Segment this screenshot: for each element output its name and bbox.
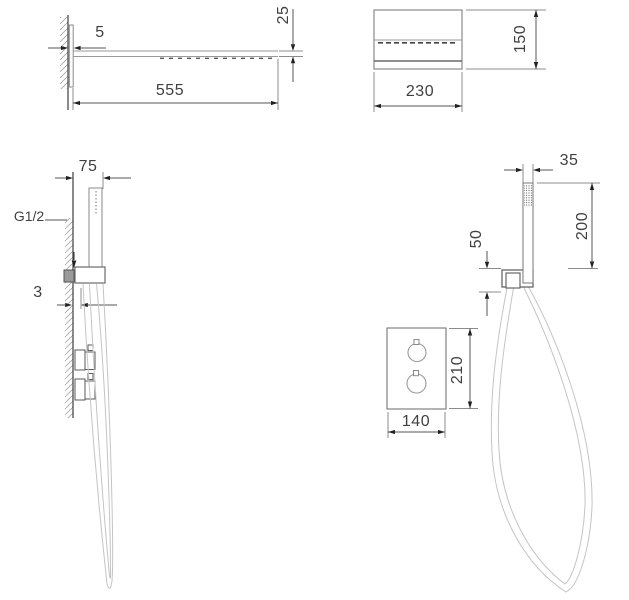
dim-label-handset-offset: 75 xyxy=(79,158,98,176)
dim-head-front-height xyxy=(466,10,546,69)
arrowhead xyxy=(271,101,278,105)
arrowhead xyxy=(388,430,395,434)
dim-label-head-front-height: 150 xyxy=(512,25,530,53)
shower-hose xyxy=(83,284,113,588)
arrowhead xyxy=(533,168,540,172)
arrowhead xyxy=(534,10,538,17)
arrowhead xyxy=(590,183,594,190)
dim-label-head-length: 555 xyxy=(156,82,184,100)
mounting-plate xyxy=(69,25,73,87)
arrowhead xyxy=(534,62,538,69)
outlet-elbow xyxy=(64,270,74,282)
dim-label-plate-thickness: 5 xyxy=(95,24,104,42)
shower-hose xyxy=(491,286,592,592)
knob-notch-2 xyxy=(414,371,419,376)
dim-outlet-height xyxy=(479,251,501,316)
wall-hatch xyxy=(65,218,73,418)
arrowhead xyxy=(73,101,80,105)
technical-drawing-canvas xyxy=(0,0,629,600)
drawing-page: 5 555 25 230 150 75 G1/2 3 35 200 50 210… xyxy=(0,0,629,600)
arrowhead xyxy=(291,57,295,64)
wall-bracket xyxy=(75,267,105,283)
dim-label-panel-height: 210 xyxy=(449,356,467,384)
dim-label-wand-width: 35 xyxy=(560,152,579,170)
arrowhead xyxy=(590,262,594,269)
arrowhead xyxy=(485,292,489,299)
head-profile xyxy=(73,51,278,57)
dim-label-head-width: 230 xyxy=(406,83,434,101)
arrowhead xyxy=(438,430,445,434)
dim-plate-thickness xyxy=(48,46,106,50)
spray-face xyxy=(524,185,532,207)
arrowhead xyxy=(103,176,110,180)
dim-label-head-height: 25 xyxy=(275,6,293,25)
dim-label-panel-width: 140 xyxy=(402,413,430,431)
arrowhead xyxy=(74,46,81,50)
arrowhead xyxy=(455,104,462,108)
handset-side-view xyxy=(45,172,131,588)
arrowhead xyxy=(374,104,381,108)
dim-label-wall-gap: 3 xyxy=(33,284,42,302)
mixer-knob-side-2 xyxy=(75,374,95,401)
connection-thread-label: G1/2 xyxy=(14,208,44,224)
arrowhead xyxy=(516,168,523,172)
dim-label-outlet-height: 50 xyxy=(468,230,486,249)
arrowhead xyxy=(468,402,472,409)
arrowhead xyxy=(468,329,472,336)
arrowhead xyxy=(66,176,73,180)
mixer-knob-side-1 xyxy=(75,345,95,370)
wall-hatch xyxy=(60,17,68,89)
knob-notch-1 xyxy=(414,340,419,345)
handset-wand xyxy=(89,188,102,268)
arrowhead xyxy=(291,44,295,51)
dim-label-wand-length: 200 xyxy=(574,212,592,240)
arrowhead xyxy=(485,262,489,269)
dim-wand-width xyxy=(504,164,553,184)
holder-clip xyxy=(506,273,520,288)
